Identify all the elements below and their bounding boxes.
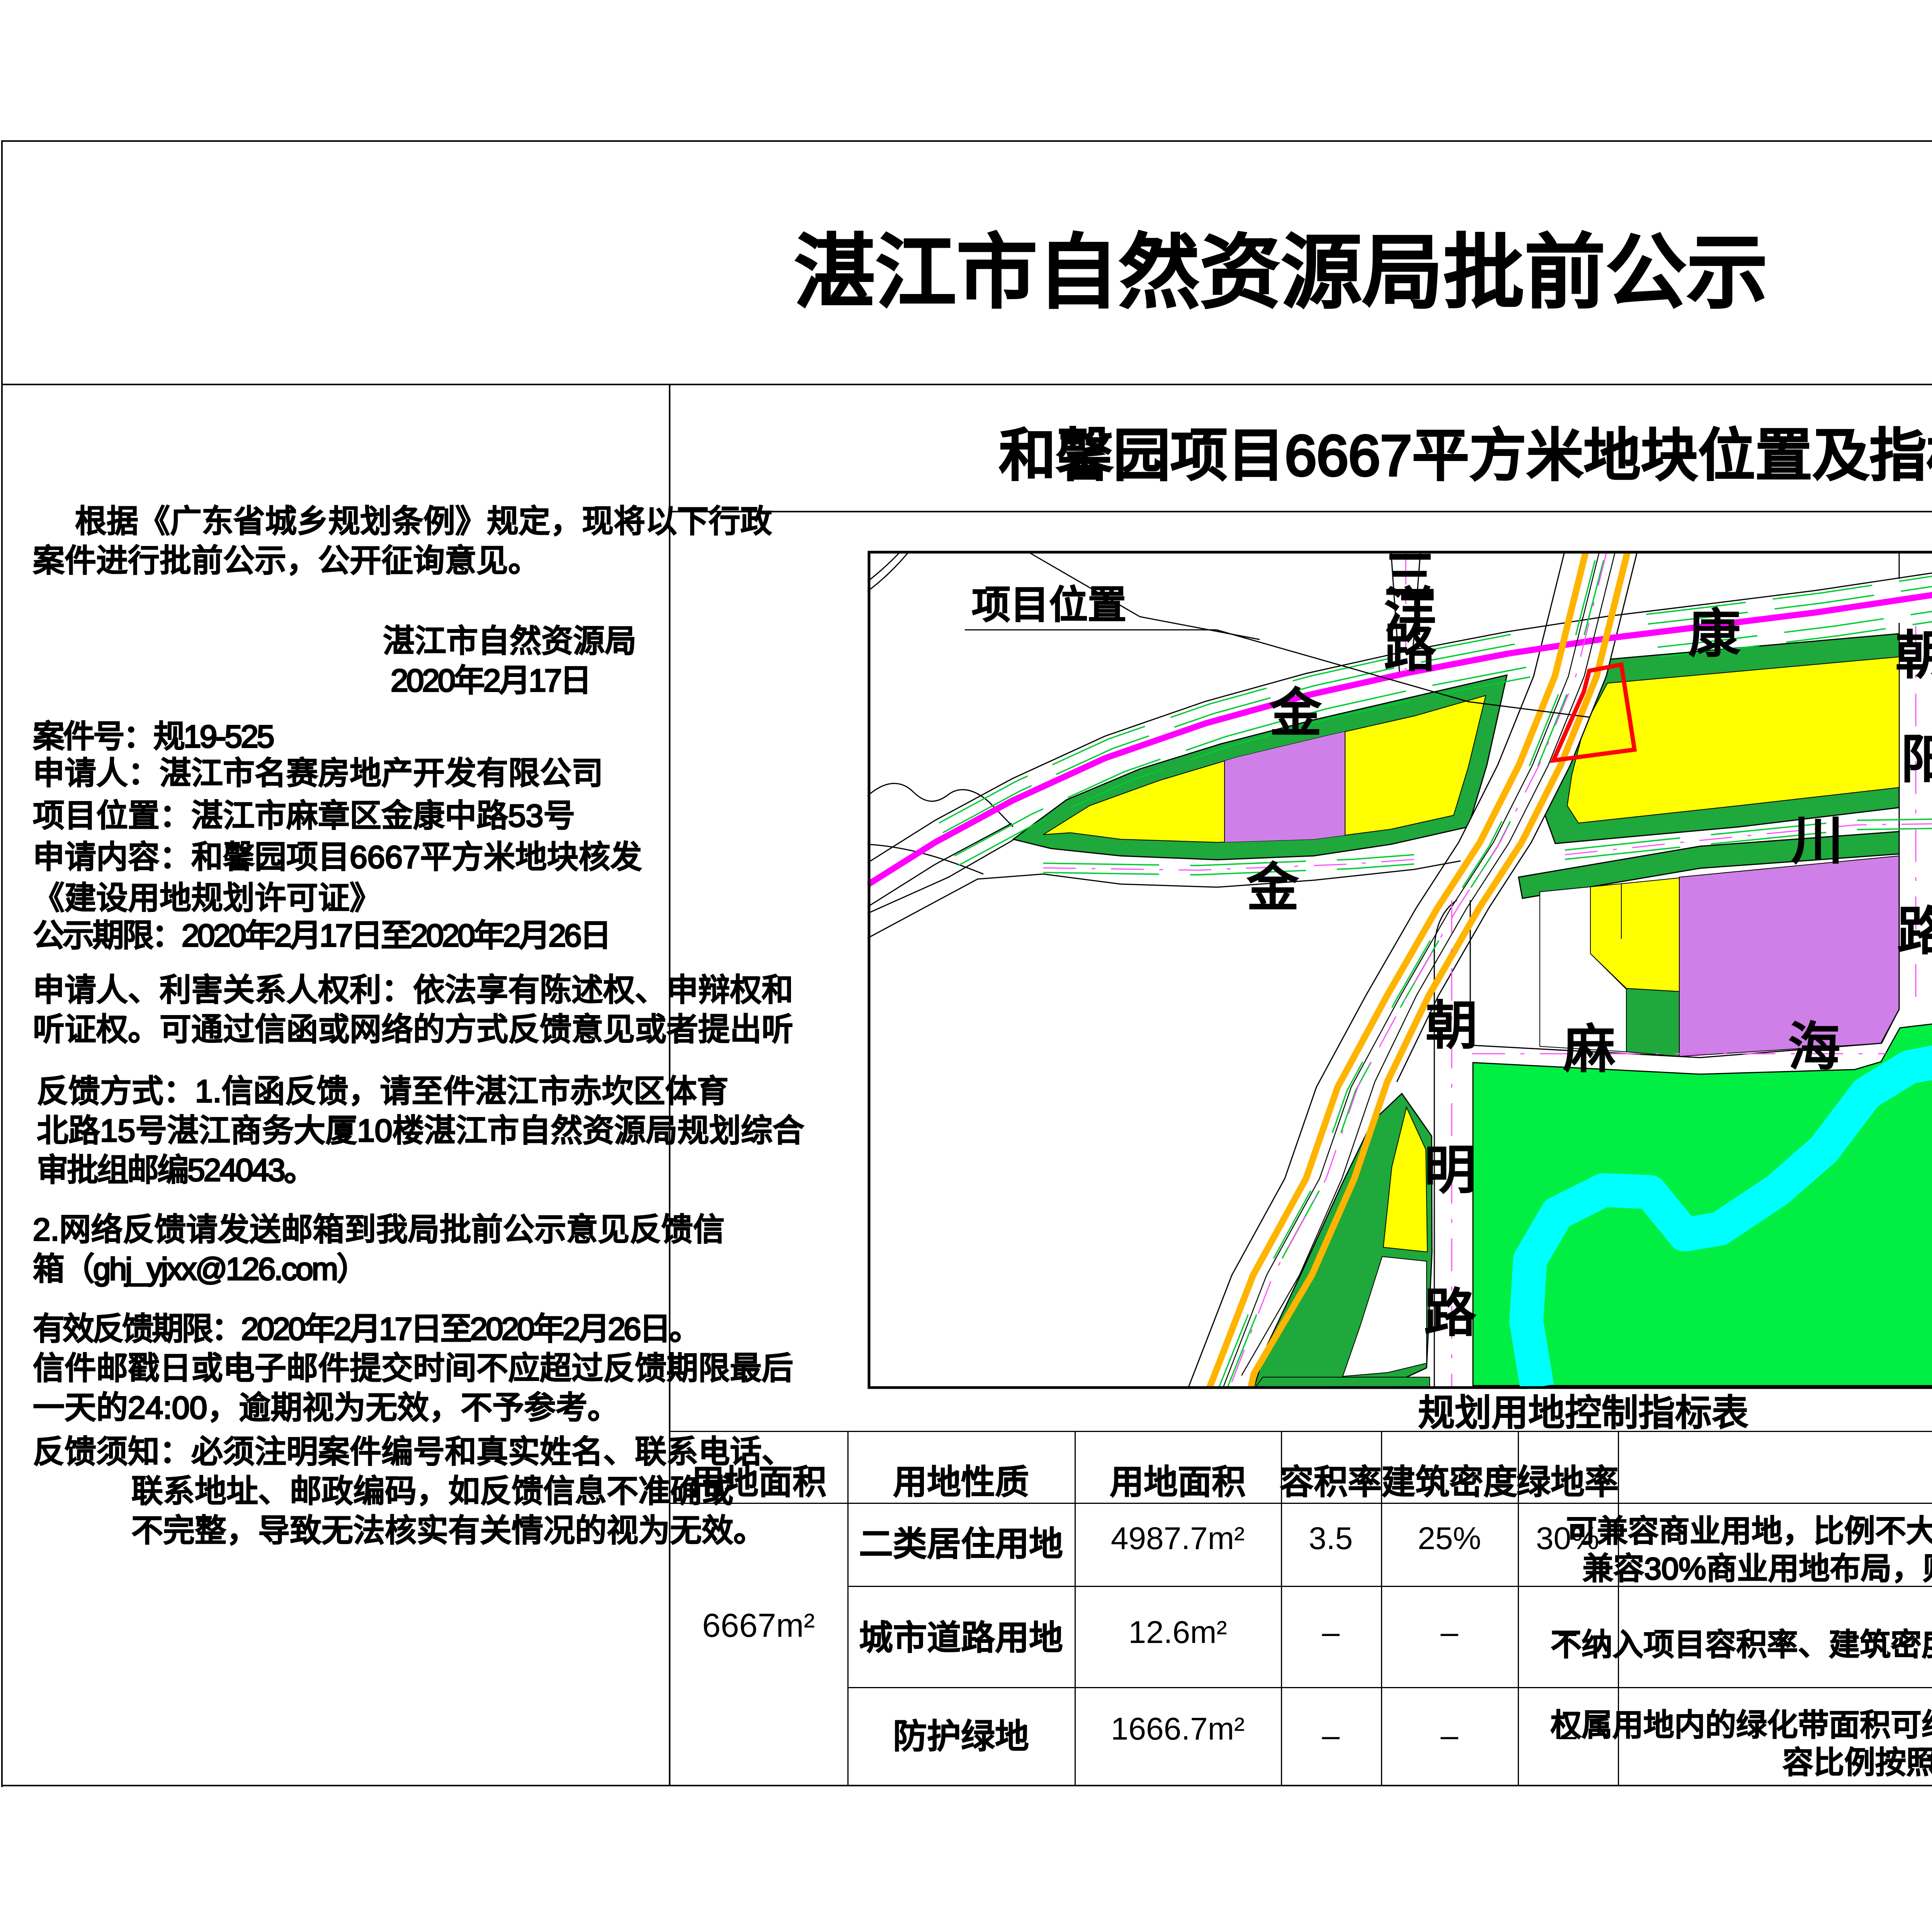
svg-text:朝: 朝 xyxy=(1896,626,1932,685)
svg-text:麻: 麻 xyxy=(1563,1020,1616,1078)
svg-text:康: 康 xyxy=(1689,605,1741,663)
svg-text:明: 明 xyxy=(1424,1141,1476,1199)
svg-text:川: 川 xyxy=(1791,811,1844,870)
svg-text:项目位置: 项目位置 xyxy=(972,583,1126,627)
svg-text:阳: 阳 xyxy=(1901,730,1932,789)
svg-text:路: 路 xyxy=(1424,1284,1476,1342)
svg-text:金: 金 xyxy=(1270,684,1322,742)
svg-text:金: 金 xyxy=(1247,859,1299,917)
svg-text:路: 路 xyxy=(1384,619,1436,677)
svg-text:海: 海 xyxy=(1788,1018,1840,1076)
svg-text:路: 路 xyxy=(1897,902,1932,961)
svg-text:朝: 朝 xyxy=(1426,997,1478,1055)
